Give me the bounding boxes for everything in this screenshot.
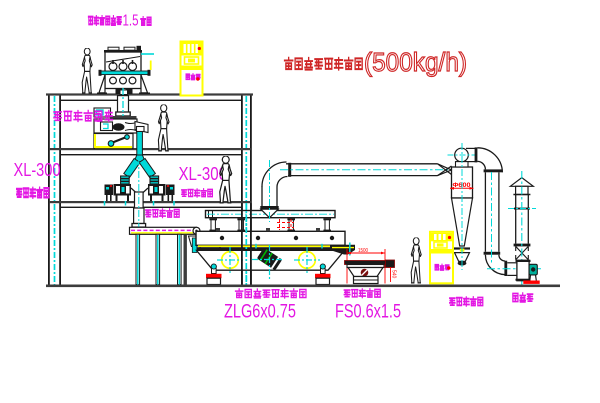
svg-text:3: 3 — [95, 109, 103, 125]
svg-text:(500kg/h): (500kg/h) — [364, 49, 467, 77]
svg-text:540: 540 — [391, 270, 397, 279]
svg-text:FS0.6x1.5: FS0.6x1.5 — [335, 300, 401, 322]
svg-text:XL-300: XL-300 — [14, 159, 61, 180]
svg-text:1.5: 1.5 — [123, 13, 139, 30]
svg-text:ZLG6x0.75: ZLG6x0.75 — [224, 300, 296, 322]
svg-text:1500: 1500 — [358, 248, 368, 254]
